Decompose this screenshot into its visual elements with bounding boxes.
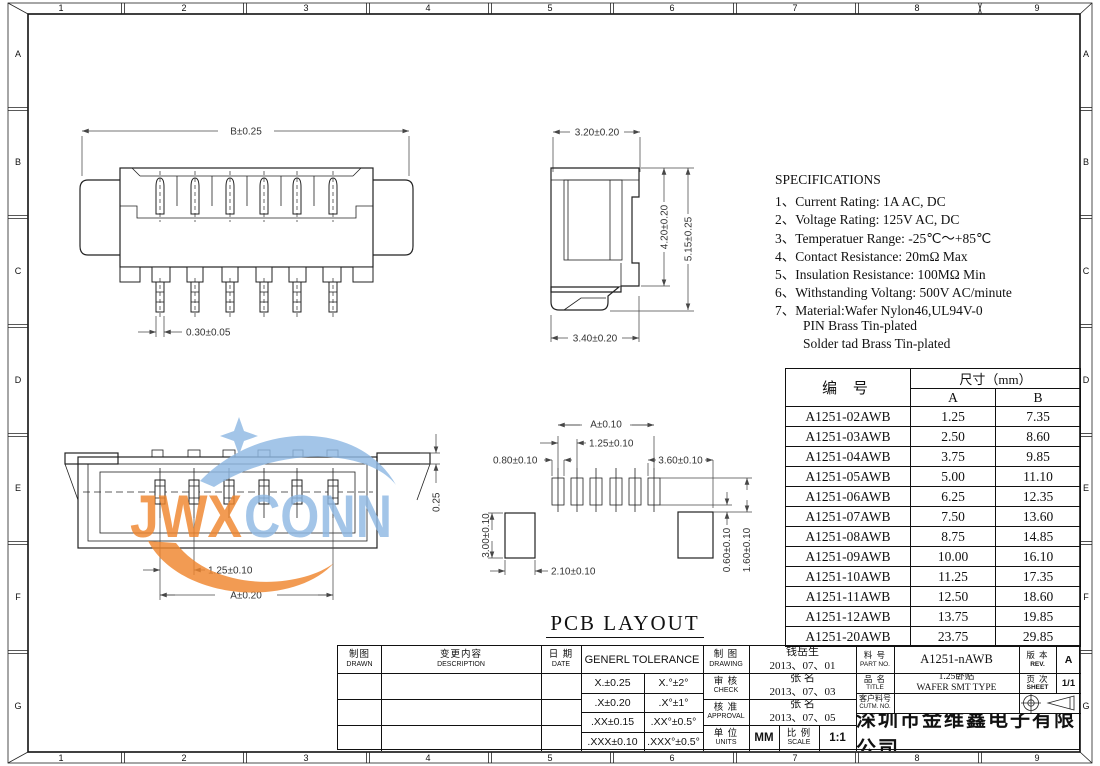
sheet-label-en: SHEET [1027, 684, 1049, 691]
check-label-cn: 审 核 [714, 677, 738, 688]
zone-label: B [1079, 157, 1093, 167]
table-row: A1251-07AWB7.5013.60 [786, 507, 1081, 527]
part-no-cell: A1251-12AWB [786, 607, 911, 627]
dim-label: 2.10±0.10 [551, 567, 596, 578]
zone-label: 1 [54, 753, 68, 763]
rev-header: 版 本 REV. [1019, 646, 1056, 673]
dim-b-cell: 18.60 [996, 587, 1081, 607]
zone-label: 4 [421, 3, 435, 13]
sheet-header: 页 次 SHEET [1019, 673, 1056, 693]
zone-label: G [1079, 701, 1093, 711]
dim-label: 4.20±0.20 [660, 204, 671, 249]
part-number-table: 编 号 尺寸（mm） A B A1251-02AWB1.257.35 A1251… [785, 368, 1081, 647]
anchor-pad-right [678, 512, 713, 558]
zone-label: 5 [543, 753, 557, 763]
zone-label: 2 [177, 753, 191, 763]
zone-label: F [11, 592, 25, 602]
zone-label: 3 [299, 753, 313, 763]
dim-label: 0.30±0.05 [186, 328, 231, 339]
customer-label-en: CUTM. NO. [859, 704, 890, 711]
approval-label-cn: 核 准 [714, 703, 738, 714]
table-row: A1251-02AWB1.257.35 [786, 407, 1081, 427]
zone-label: C [11, 266, 25, 276]
approval-signoff: 张 名 2013、07、05 [749, 699, 856, 725]
customer-no-value [894, 693, 1019, 713]
part-no-cell: A1251-02AWB [786, 407, 911, 427]
anchor-pad-left [505, 513, 535, 558]
zone-label: 9 [1030, 3, 1044, 13]
dim-b-cell: 11.10 [996, 467, 1081, 487]
dim-a-cell: 12.50 [911, 587, 996, 607]
drawing-name: 钱岳生 [786, 646, 819, 660]
drawn-label-cn: 制图 [349, 650, 370, 661]
tolerance-header: GENERL TOLERANCE [581, 646, 703, 673]
customer-no-header: 客户料号 CUTM. NO. [856, 693, 894, 713]
solder-wing-left [65, 453, 118, 500]
drawing-label-en: DRAWING [709, 661, 743, 669]
dim-a-cell: 3.75 [911, 447, 996, 467]
check-header: 审 核 CHECK [703, 673, 749, 699]
tolerance-value: .XXX°±0.5° [644, 732, 703, 751]
spec-line: 7、Material:Wafer Nylon46,UL94V-0 [775, 299, 1090, 317]
units-label-en: UNITS [716, 739, 737, 747]
scale-value: 1:1 [819, 725, 856, 751]
table-row: A1251-20AWB23.7529.85 [786, 627, 1081, 647]
date-label-cn: 日 期 [549, 650, 573, 661]
part-no-cell: A1251-08AWB [786, 527, 911, 547]
mounting-lugs [152, 450, 338, 457]
spec-line: Solder tad Brass Tin-plated [775, 336, 1090, 354]
dim-b-cell: 9.85 [996, 447, 1081, 467]
table-row: A1251-09AWB10.0016.10 [786, 547, 1081, 567]
part-no-cell: A1251-04AWB [786, 447, 911, 467]
pin-contacts [155, 468, 338, 518]
product-label-en: TITLE [866, 684, 884, 691]
dim-a-cell: 2.50 [911, 427, 996, 447]
specifications-block: SPECIFICATIONS 1、Current Rating: 1A AC, … [775, 172, 1090, 354]
description-label-cn: 变更内容 [440, 650, 482, 661]
tolerance-value: .XX±0.15 [581, 712, 644, 732]
part-no-value: A1251-nAWB [894, 646, 1019, 673]
dim-a-cell: 11.25 [911, 567, 996, 587]
product-label-cn: 品 名 [864, 675, 886, 685]
zone-label: 7 [788, 3, 802, 13]
zone-label: 7 [788, 753, 802, 763]
side-view-drawing: 3.20±0.20 4.20±0.20 5.15±0.25 3.40±0.20 [518, 110, 753, 355]
part-no-label-cn: 料 号 [864, 651, 886, 661]
zone-label: G [11, 701, 25, 711]
dim-b-cell: 7.35 [996, 407, 1081, 427]
part-no-cell: A1251-07AWB [786, 507, 911, 527]
description-label-en: DESCRIPTION [437, 661, 485, 669]
spec-line: PIN Brass Tin-plated [775, 318, 1090, 336]
specifications-title: SPECIFICATIONS [775, 172, 1090, 190]
col-header-b: B [996, 389, 1081, 407]
check-label-en: CHECK [714, 687, 739, 695]
spec-line: 4、Contact Resistance: 20mΩ Max [775, 245, 1090, 263]
part-no-cell: A1251-05AWB [786, 467, 911, 487]
dim-a-cell: 13.75 [911, 607, 996, 627]
dim-label: 1.25±0.10 [589, 439, 634, 450]
dim-label: 3.60±0.10 [658, 456, 703, 467]
zone-label: A [11, 49, 25, 59]
zone-label: 8 [910, 753, 924, 763]
zone-label: D [11, 375, 25, 385]
product-name-line2: WAFER SMT TYPE [917, 683, 997, 693]
rev-label-en: REV. [1030, 661, 1045, 668]
table-row: A1251-12AWB13.7519.85 [786, 607, 1081, 627]
dim-label: 0.80±0.10 [493, 456, 538, 467]
drawn-header: 制图 DRAWN [338, 646, 381, 673]
tolerance-value: .X±0.20 [581, 693, 644, 712]
part-no-cell: A1251-10AWB [786, 567, 911, 587]
dim-label: A±0.20 [230, 591, 262, 602]
zone-label: E [11, 483, 25, 493]
zone-label: D [1079, 375, 1093, 385]
zone-label: 1 [54, 3, 68, 13]
spec-line: 3、Temperatuer Range: -25℃～+85℃ [775, 227, 1090, 245]
dim-b-cell: 16.10 [996, 547, 1081, 567]
engineering-drawing-page: { "frame": { "top_zones": ["1","2","3","… [0, 0, 1100, 766]
dim-b-cell: 14.85 [996, 527, 1081, 547]
bottom-tabs [120, 267, 373, 282]
zone-label: 4 [421, 753, 435, 763]
tolerance-value: .XXX±0.10 [581, 732, 644, 751]
spec-line: 2、Voltage Rating: 125V AC, DC [775, 208, 1090, 226]
tolerance-value: .XX°±0.5° [644, 712, 703, 732]
bottom-pins [156, 278, 337, 320]
description-header: 变更内容 DESCRIPTION [381, 646, 541, 673]
zone-label: B [11, 157, 25, 167]
dim-label: B±0.25 [230, 127, 262, 138]
rev-value: A [1056, 646, 1081, 673]
dim-label: A±0.10 [590, 420, 622, 431]
spec-line: 6、Withstanding Voltang: 500V AC/minute [775, 281, 1090, 299]
front-view-drawing: B±0.25 [60, 110, 460, 350]
units-label-cn: 单 位 [714, 729, 738, 740]
part-no-cell: A1251-03AWB [786, 427, 911, 447]
dim-label: 5.15±0.25 [684, 216, 695, 261]
projection-symbol [1019, 693, 1081, 713]
table-row: A1251-06AWB6.2512.35 [786, 487, 1081, 507]
table-row: A1251-11AWB12.5018.60 [786, 587, 1081, 607]
dim-label: 1.25±0.10 [208, 566, 253, 577]
dim-a-cell: 1.25 [911, 407, 996, 427]
dim-a-cell: 5.00 [911, 467, 996, 487]
dim-b-cell: 29.85 [996, 627, 1081, 647]
zone-label: 2 [177, 3, 191, 13]
dim-b-cell: 19.85 [996, 607, 1081, 627]
approval-header: 核 准 APPROVAL [703, 699, 749, 725]
date-header: 日 期 DATE [541, 646, 581, 673]
rev-label-cn: 版 本 [1026, 651, 1048, 661]
dim-label: 1.60±0.10 [742, 527, 753, 572]
units-header: 单 位 UNITS [703, 725, 749, 751]
check-name: 张 名 [790, 673, 815, 686]
table-row: A1251-05AWB5.0011.10 [786, 467, 1081, 487]
dim-a-cell: 8.75 [911, 527, 996, 547]
zone-label: 3 [299, 3, 313, 13]
dim-label: 3.40±0.20 [573, 334, 618, 345]
zone-label: 8 [910, 3, 924, 13]
scale-label-cn: 比 例 [787, 729, 811, 740]
dim-b-cell: 12.35 [996, 487, 1081, 507]
sheet-label-cn: 页 次 [1026, 675, 1048, 685]
zone-label: 6 [665, 3, 679, 13]
part-no-cell: A1251-09AWB [786, 547, 911, 567]
table-row: A1251-10AWB11.2517.35 [786, 567, 1081, 587]
dim-label: 0.60±0.10 [722, 527, 733, 572]
product-name-value: 1.25卧贴 WAFER SMT TYPE [894, 673, 1019, 693]
zone-label: F [1079, 592, 1093, 602]
part-no-header: 料 号 PART NO. [856, 646, 894, 673]
units-value: MM [749, 725, 779, 751]
dim-a-cell: 23.75 [911, 627, 996, 647]
third-angle-projection-icon [1020, 693, 1080, 713]
title-block: 制图 DRAWN 变更内容 DESCRIPTION 日 期 DATE GENER… [337, 645, 1080, 750]
pcb-layout-title: PCB LAYOUT [546, 611, 704, 638]
dim-label: 3.20±0.20 [575, 128, 620, 139]
part-no-cell: A1251-06AWB [786, 487, 911, 507]
zone-label: 5 [543, 3, 557, 13]
part-no-cell: A1251-20AWB [786, 627, 911, 647]
zone-label: 6 [665, 753, 679, 763]
table-row: A1251-08AWB8.7514.85 [786, 527, 1081, 547]
table-row: A1251-04AWB3.759.85 [786, 447, 1081, 467]
drawing-label-cn: 制 图 [714, 650, 738, 661]
top-pins [156, 171, 337, 222]
zone-label: A [1079, 49, 1093, 59]
drawing-date: 2013、07、01 [770, 660, 836, 674]
drawing-signoff: 钱岳生 2013、07、01 [749, 646, 856, 673]
zone-label: 9 [1030, 753, 1044, 763]
dim-b-cell: 17.35 [996, 567, 1081, 587]
dim-b-cell: 13.60 [996, 507, 1081, 527]
dim-a-cell: 7.50 [911, 507, 996, 527]
sheet-value: 1/1 [1056, 673, 1081, 693]
dim-a-cell: 10.00 [911, 547, 996, 567]
zone-label: E [1079, 483, 1093, 493]
spec-line: 5、Insulation Resistance: 100MΩ Min [775, 263, 1090, 281]
date-label-en: DATE [552, 661, 570, 669]
dim-b-cell: 8.60 [996, 427, 1081, 447]
part-no-label-en: PART NO. [860, 661, 890, 668]
top-view-drawing: 1.25±0.10 A±0.20 0.25 [55, 420, 455, 650]
company-name-text: 深圳市金维鑫电子有限公司 [856, 713, 1081, 751]
tolerance-value: X.°±2° [644, 673, 703, 693]
col-header-part-no: 编 号 [786, 369, 911, 407]
solder-wing-right [377, 453, 430, 500]
approval-label-en: APPROVAL [707, 713, 744, 721]
drawing-header: 制 图 DRAWING [703, 646, 749, 673]
table-row: A1251-03AWB2.508.60 [786, 427, 1081, 447]
product-name-line1: 1.25卧贴 [939, 673, 975, 683]
approval-name: 张 名 [790, 699, 815, 712]
product-name-header: 品 名 TITLE [856, 673, 894, 693]
scale-header: 比 例 SCALE [779, 725, 819, 751]
spec-line: 1、Current Rating: 1A AC, DC [775, 190, 1090, 208]
scale-label-en: SCALE [788, 739, 811, 747]
signal-pads [552, 478, 660, 505]
check-date: 2013、07、03 [770, 686, 836, 699]
part-no-cell: A1251-11AWB [786, 587, 911, 607]
customer-label-cn: 客户料号 [859, 695, 891, 704]
check-signoff: 张 名 2013、07、03 [749, 673, 856, 699]
pcb-layout-drawing: A±0.10 1.25±0.10 0.80±0.10 3.60±0.10 3.0… [440, 408, 790, 628]
col-header-dimensions: 尺寸（mm） [911, 369, 1081, 389]
company-name: 深圳市金维鑫电子有限公司 [856, 713, 1081, 751]
tolerance-value: .X°±1° [644, 693, 703, 712]
drawn-label-en: DRAWN [346, 661, 372, 669]
approval-date: 2013、07、05 [770, 712, 836, 725]
tolerance-value: X.±0.25 [581, 673, 644, 693]
col-header-a: A [911, 389, 996, 407]
dim-a-cell: 6.25 [911, 487, 996, 507]
dim-label: 3.00±0.10 [481, 513, 492, 558]
